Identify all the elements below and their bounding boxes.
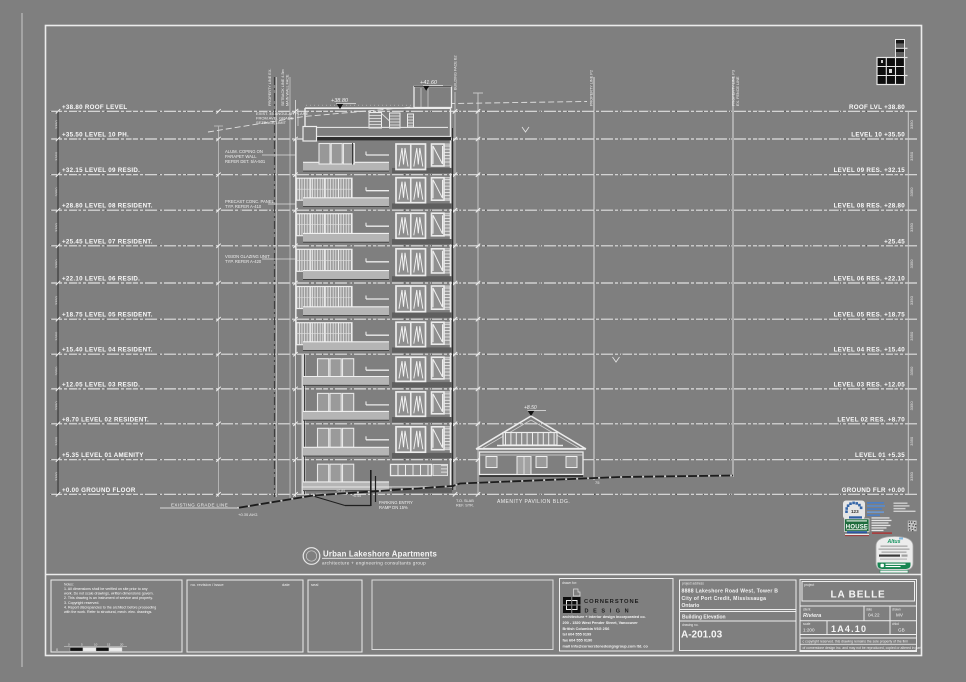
svg-text:+18.75 LEVEL 05 RESIDENT.: +18.75 LEVEL 05 RESIDENT. (62, 312, 153, 319)
svg-text:04.22: 04.22 (868, 613, 880, 618)
svg-text:EXISTING GRADE LINE: EXISTING GRADE LINE (171, 503, 228, 508)
svg-text:0: 0 (56, 648, 58, 652)
svg-text:drawn for:: drawn for: (562, 581, 577, 585)
svg-text:3350: 3350 (909, 222, 914, 232)
svg-text:client: client (803, 608, 811, 612)
svg-text:of cornerstone design inc. and: of cornerstone design inc. and may not b… (803, 646, 923, 650)
svg-text:LEVEL 03 RES. +12.05: LEVEL 03 RES. +12.05 (834, 381, 906, 388)
svg-text:mail info@cornerstonedesigngr: mail info@cornerstonedesigngroup.com ltd… (563, 645, 649, 649)
svg-text:architecture + engineering con: architecture + engineering consultants g… (322, 561, 426, 566)
svg-text:3350: 3350 (909, 295, 914, 305)
svg-text:3350: 3350 (909, 471, 914, 481)
svg-text:REF. STR.: REF. STR. (456, 504, 474, 508)
svg-text:+38.80 ROOF LEVEL: +38.80 ROOF LEVEL (62, 104, 127, 111)
svg-text:3350: 3350 (909, 119, 914, 129)
svg-text:BUILDING FACE B2: BUILDING FACE B2 (454, 55, 458, 90)
svg-text:PROPERTY LINE P2: PROPERTY LINE P2 (590, 70, 594, 106)
svg-text:Riviera: Riviera (803, 613, 821, 619)
svg-text:1. All dimensions shall be ver: 1. All dimensions shall be verified on s… (64, 587, 148, 591)
svg-text:date: date (282, 582, 291, 587)
svg-text:Altus: Altus (887, 539, 901, 545)
svg-text:3350: 3350 (909, 187, 914, 197)
svg-text:LEVEL 02 RES. +8.70: LEVEL 02 RES. +8.70 (837, 416, 905, 423)
svg-text:+0.00 GROUND FLOOR: +0.00 GROUND FLOOR (62, 487, 136, 494)
svg-text:tel 604 555 0199: tel 604 555 0199 (563, 633, 592, 637)
svg-text:architecture + interior design: architecture + interior design incorpora… (563, 615, 646, 619)
svg-text:+0.55: +0.55 (352, 494, 361, 498)
svg-text:3350: 3350 (909, 436, 914, 446)
svg-text:scale: scale (803, 622, 811, 626)
svg-text:8888 Lakeshore Road West, Towe: 8888 Lakeshore Road West, Tower B (682, 589, 779, 595)
svg-text:Urban Lakeshore Apartments: Urban Lakeshore Apartments (323, 550, 438, 559)
svg-text:chkd: chkd (892, 622, 899, 626)
svg-text:+15.40 LEVEL 04 RESIDENT.: +15.40 LEVEL 04 RESIDENT. (62, 347, 153, 354)
svg-text:+0.85: +0.85 (336, 489, 345, 493)
svg-text:CORNERSTONE: CORNERSTONE (584, 599, 639, 605)
svg-text:drawn: drawn (892, 608, 901, 612)
svg-text:3. Copyright reserved.: 3. Copyright reserved. (64, 601, 99, 605)
svg-text:GROUND FLR +0.00: GROUND FLR +0.00 (842, 487, 906, 494)
svg-text:1A4.10: 1A4.10 (831, 624, 867, 634)
svg-text:3350: 3350 (909, 366, 914, 376)
svg-text:200 - 1520 West Pender Street,: 200 - 1520 West Pender Street, Vancouver (563, 621, 639, 625)
svg-text:T.O. SLAB: T.O. SLAB (456, 499, 474, 503)
svg-text:1:200: 1:200 (803, 628, 815, 633)
svg-text:SETBACK LINE 4.5m: SETBACK LINE 4.5m (281, 69, 285, 106)
svg-text:MV: MV (896, 613, 904, 618)
svg-text:REFER DET. 5/A-501: REFER DET. 5/A-501 (225, 159, 266, 164)
svg-text:+25.45: +25.45 (884, 238, 905, 245)
svg-text:A-201.03: A-201.03 (681, 630, 723, 641)
svg-text:PROPERTY LINE P3: PROPERTY LINE P3 (732, 70, 736, 106)
svg-text:LEVEL 10 +35.50: LEVEL 10 +35.50 (851, 132, 905, 139)
svg-text:+35.50 LEVEL 10 PH.: +35.50 LEVEL 10 PH. (62, 132, 129, 139)
svg-text:City of Port Credit, Mississau: City of Port Credit, Mississauga (682, 596, 767, 602)
svg-text:+22.10 LEVEL 06 RESID.: +22.10 LEVEL 06 RESID. (62, 276, 140, 283)
svg-text:3350: 3350 (909, 331, 914, 341)
svg-text:+0.35 AVG.: +0.35 AVG. (238, 512, 258, 517)
svg-text:British Columbia V6G 2S6: British Columbia V6G 2S6 (563, 627, 610, 631)
svg-text:DESIGN: DESIGN (585, 609, 634, 615)
svg-text:c copyright reserved. this dra: c copyright reserved. this drawing remai… (803, 640, 909, 644)
svg-text:LEVEL 08 RES. +28.80: LEVEL 08 RES. +28.80 (834, 203, 906, 210)
svg-text:no. revision / issue: no. revision / issue (191, 582, 225, 587)
svg-text:TYP. REFER A-410: TYP. REFER A-410 (225, 204, 262, 209)
svg-text:10: 10 (94, 643, 98, 647)
svg-text:seal: seal (311, 582, 318, 587)
svg-text:+5.35 LEVEL 01 AMENITY: +5.35 LEVEL 01 AMENITY (62, 452, 144, 459)
svg-text:project address: project address (682, 582, 704, 586)
svg-text:work. Do not scale drawings, w: work. Do not scale drawings, written dim… (64, 592, 154, 596)
svg-text:AMENITY PAVILION BLDG.: AMENITY PAVILION BLDG. (497, 499, 570, 505)
svg-text:2. This drawing is an instrume: 2. This drawing is an instrument of serv… (64, 596, 153, 600)
svg-text:with the work. Refer to struct: with the work. Refer to structural, mech… (64, 610, 152, 614)
svg-text:+12.05 LEVEL 03 RESID.: +12.05 LEVEL 03 RESID. (62, 381, 140, 388)
svg-text:drawing no.: drawing no. (682, 623, 699, 627)
svg-text:Notes:: Notes: (64, 583, 74, 587)
svg-text:TYP. REFER A-420: TYP. REFER A-420 (225, 259, 262, 264)
svg-text:75: 75 (595, 480, 600, 485)
svg-text:+32.15 LEVEL 09 RESID.: +32.15 LEVEL 09 RESID. (62, 167, 140, 174)
svg-text:LA BELLE: LA BELLE (831, 590, 886, 601)
svg-text:EX. FENCE LINE: EX. FENCE LINE (736, 76, 740, 106)
svg-text:ROOF LVL +38.80: ROOF LVL +38.80 (849, 104, 905, 111)
svg-text:Building Elevation: Building Elevation (682, 615, 726, 621)
svg-text:LEVEL 04 RES. +15.40: LEVEL 04 RES. +15.40 (834, 347, 906, 354)
svg-text:+8.70 LEVEL 02 RESIDENT.: +8.70 LEVEL 02 RESIDENT. (62, 416, 149, 423)
svg-text:20: 20 (120, 643, 124, 647)
svg-text:PROPERTY LINE EX.: PROPERTY LINE EX. (268, 69, 272, 106)
svg-text:+28.80 LEVEL 08 RESIDENT.: +28.80 LEVEL 08 RESIDENT. (62, 203, 153, 210)
svg-text:LEVEL 06 RES. +22.10: LEVEL 06 RES. +22.10 (834, 276, 906, 283)
svg-text:MAIN WALL FACE: MAIN WALL FACE (286, 74, 290, 106)
svg-text:3350: 3350 (909, 259, 914, 269)
svg-text:3350: 3350 (909, 401, 914, 411)
svg-text:LEVEL 09 RES. +32.15: LEVEL 09 RES. +32.15 (834, 167, 906, 174)
svg-text:LEVEL 05 RES. +18.75: LEVEL 05 RES. +18.75 (834, 312, 906, 319)
svg-text:123: 123 (851, 509, 859, 514)
svg-text:date: date (866, 608, 872, 612)
svg-text:4. Report discrepancies to the: 4. Report discrepancies to the architect… (64, 605, 156, 609)
svg-text:LEVEL 01 +5.35: LEVEL 01 +5.35 (855, 452, 905, 459)
svg-text:SETBACK LIMIT: SETBACK LIMIT (256, 120, 287, 125)
svg-text:Ontario: Ontario (682, 603, 700, 609)
svg-text:project: project (804, 583, 814, 587)
svg-text:RAMP DN 15%: RAMP DN 15% (379, 505, 408, 510)
svg-text:fax 604 555 0190: fax 604 555 0190 (563, 639, 593, 643)
svg-text:+25.45 LEVEL 07 RESIDENT.: +25.45 LEVEL 07 RESIDENT. (62, 238, 153, 245)
svg-text:3350: 3350 (909, 151, 914, 161)
svg-text:GB: GB (898, 628, 905, 633)
svg-text:15: 15 (107, 643, 111, 647)
